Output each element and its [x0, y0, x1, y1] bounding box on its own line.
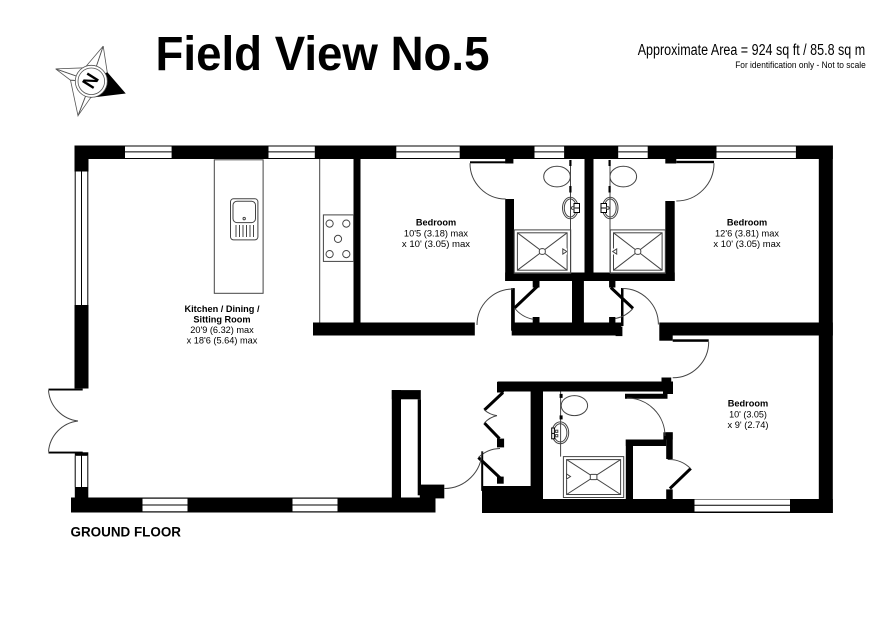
- svg-text:Bedroom: Bedroom: [727, 217, 767, 227]
- svg-text:Sitting Room: Sitting Room: [193, 315, 250, 325]
- svg-text:Field View No.5: Field View No.5: [156, 28, 490, 81]
- svg-text:10'5 (3.18) max: 10'5 (3.18) max: [404, 229, 469, 239]
- svg-text:20'9 (6.32) max: 20'9 (6.32) max: [190, 325, 254, 335]
- svg-text:x 9' (2.74): x 9' (2.74): [728, 420, 769, 430]
- svg-text:Kitchen / Dining /: Kitchen / Dining /: [184, 304, 259, 314]
- svg-text:x 10' (3.05) max: x 10' (3.05) max: [713, 239, 781, 249]
- svg-text:Approximate Area = 924 sq ft /: Approximate Area = 924 sq ft / 85.8 sq m: [638, 42, 866, 59]
- svg-text:Bedroom: Bedroom: [416, 218, 456, 228]
- svg-text:For identification only - Not: For identification only - Not to scale: [735, 60, 866, 70]
- svg-text:Bedroom: Bedroom: [728, 399, 769, 409]
- svg-text:12'6 (3.81) max: 12'6 (3.81) max: [715, 229, 779, 239]
- svg-text:x 18'6 (5.64) max: x 18'6 (5.64) max: [187, 336, 258, 346]
- svg-text:GROUND FLOOR: GROUND FLOOR: [71, 524, 182, 540]
- svg-text:10' (3.05): 10' (3.05): [729, 410, 767, 420]
- svg-text:x 10' (3.05) max: x 10' (3.05) max: [402, 239, 471, 249]
